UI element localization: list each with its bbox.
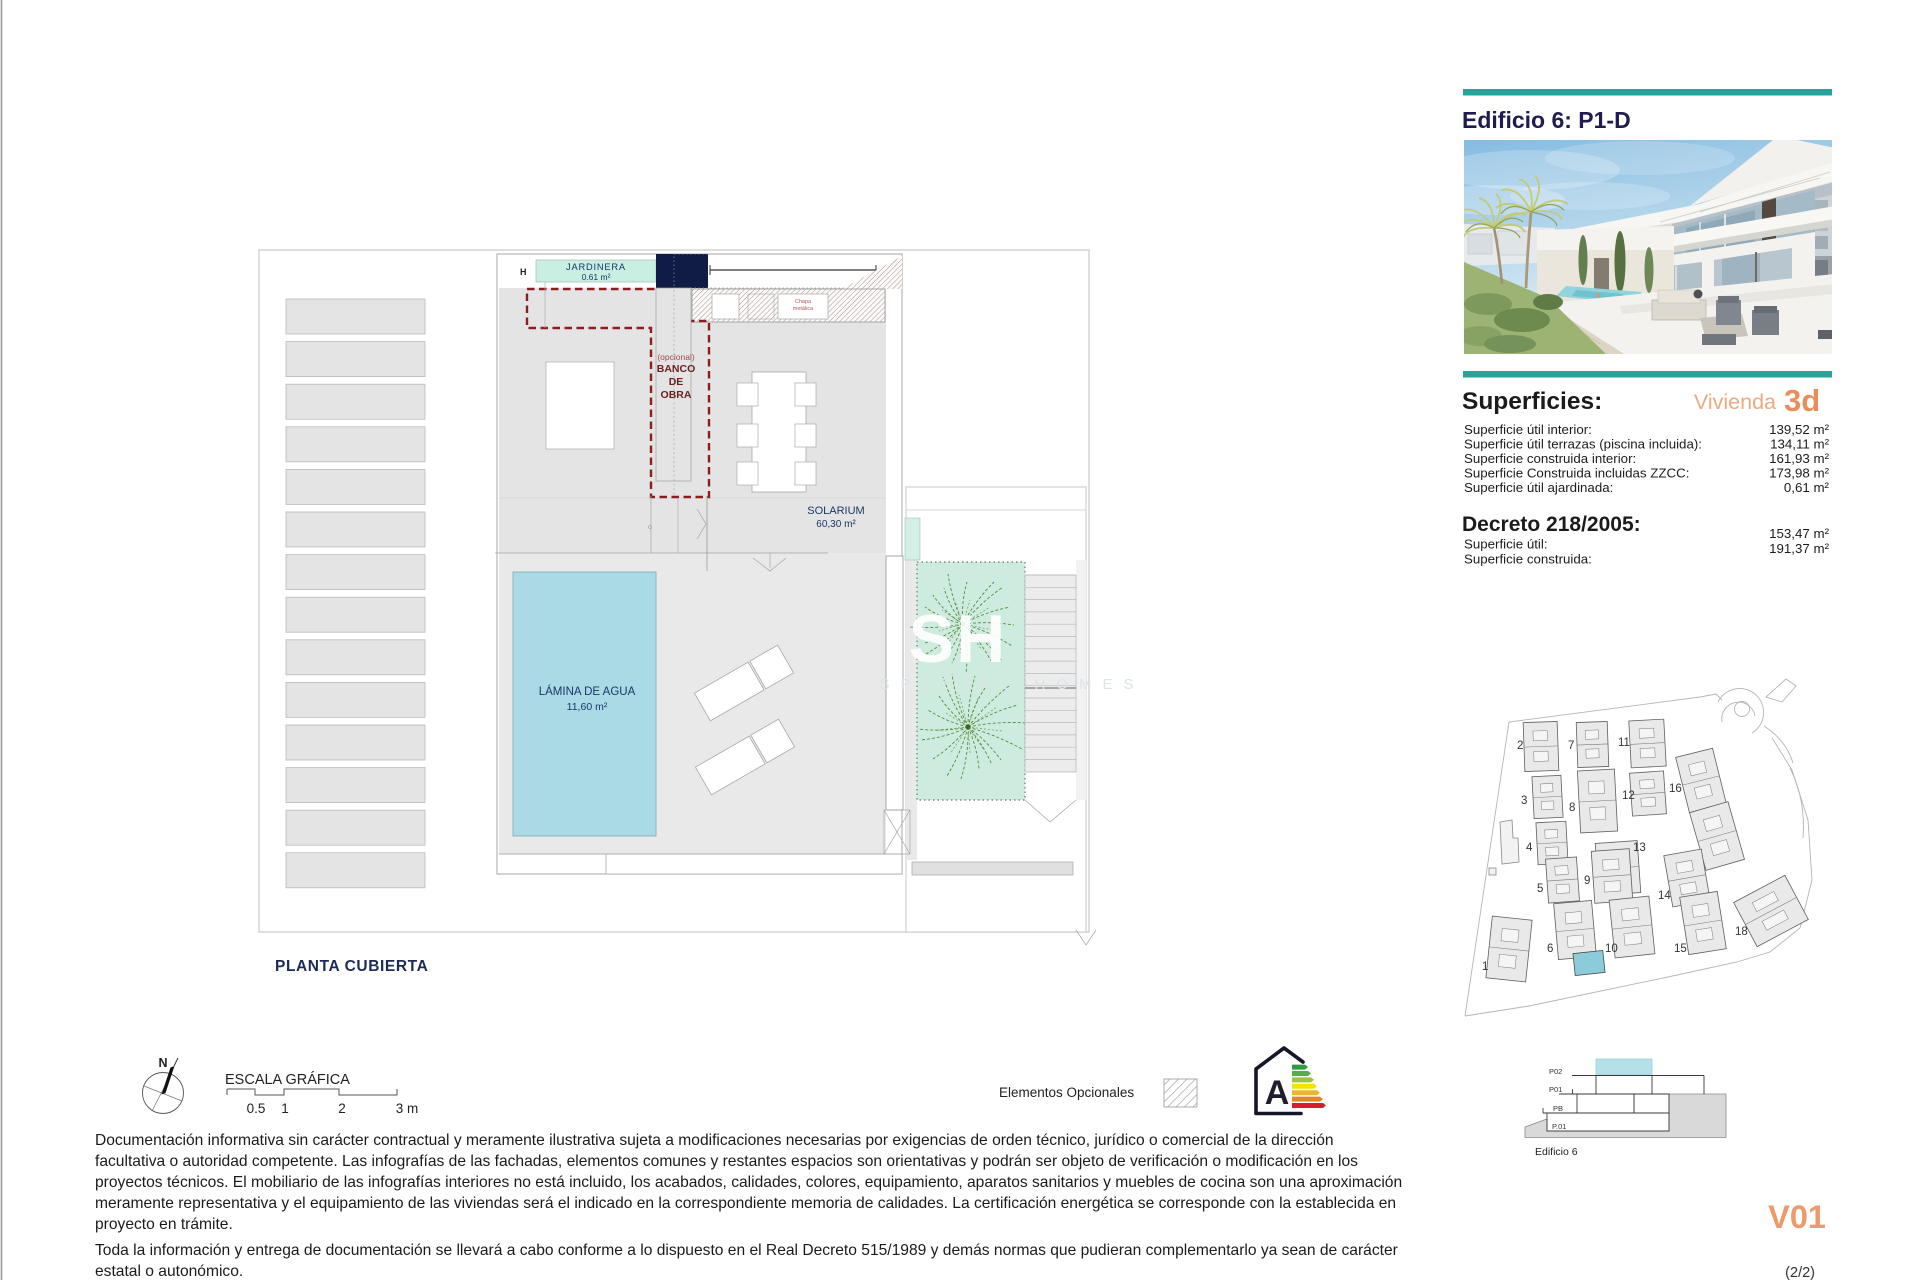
svg-text:16: 16 — [1669, 783, 1682, 795]
svg-text:PLANTA CUBIERTA: PLANTA CUBIERTA — [275, 958, 428, 975]
svg-text:2: 2 — [1517, 740, 1523, 752]
svg-text:0,61 m²: 0,61 m² — [1784, 480, 1830, 495]
svg-text:PB: PB — [1553, 1104, 1563, 1113]
svg-text:0.61 m²: 0.61 m² — [582, 272, 611, 282]
svg-text:11: 11 — [1618, 737, 1630, 749]
svg-text:Superficie construida:: Superficie construida: — [1464, 552, 1592, 567]
svg-text:P01: P01 — [1549, 1085, 1562, 1094]
svg-text:139,52 m²: 139,52 m² — [1769, 422, 1829, 437]
svg-text:4: 4 — [1526, 842, 1533, 854]
svg-text:173,98 m²: 173,98 m² — [1769, 466, 1829, 481]
svg-text:Decreto 218/2005:: Decreto 218/2005: — [1462, 513, 1641, 536]
svg-text:N: N — [158, 1056, 167, 1070]
svg-text:60,30 m²: 60,30 m² — [816, 519, 856, 530]
svg-text:3 m: 3 m — [396, 1101, 419, 1116]
svg-text:10: 10 — [1605, 943, 1618, 955]
svg-text:9: 9 — [1584, 875, 1590, 887]
svg-text:3: 3 — [1521, 795, 1527, 807]
svg-text:P02: P02 — [1549, 1067, 1562, 1076]
svg-text:Elementos Opcionales: Elementos Opcionales — [999, 1085, 1134, 1100]
svg-text:Superficie Construida incluida: Superficie Construida incluidas ZZCC: — [1464, 466, 1689, 481]
svg-text:V01: V01 — [1768, 1199, 1826, 1235]
svg-text:6: 6 — [1547, 943, 1553, 955]
svg-text:Superficie útil interior:: Superficie útil interior: — [1464, 422, 1592, 437]
svg-text:Superficies:: Superficies: — [1462, 388, 1602, 415]
svg-text:12: 12 — [1622, 790, 1635, 802]
svg-text:Superficie útil ajardinada:: Superficie útil ajardinada: — [1464, 480, 1613, 495]
svg-text:14: 14 — [1658, 890, 1671, 902]
svg-text:1: 1 — [281, 1101, 289, 1116]
svg-text:1: 1 — [1482, 961, 1488, 973]
svg-text:153,47 m²: 153,47 m² — [1769, 526, 1829, 541]
svg-text:DE: DE — [669, 376, 684, 388]
svg-text:metálica: metálica — [793, 306, 814, 312]
svg-text:2: 2 — [338, 1101, 346, 1116]
svg-text:13: 13 — [1633, 842, 1646, 854]
svg-text:Vivienda: Vivienda — [1694, 390, 1776, 414]
svg-text:(opcional): (opcional) — [657, 352, 694, 362]
svg-text:P.01: P.01 — [1552, 1122, 1566, 1131]
svg-text:18: 18 — [1735, 926, 1748, 938]
svg-text:Chapa: Chapa — [795, 299, 812, 305]
svg-text:SPECIAL HOMES: SPECIAL HOMES — [880, 676, 1145, 693]
svg-text:8: 8 — [1569, 802, 1575, 814]
svg-text:(2/2): (2/2) — [1785, 1265, 1815, 1280]
svg-text:H: H — [520, 267, 527, 277]
svg-text:5: 5 — [1537, 883, 1543, 895]
svg-text:191,37 m²: 191,37 m² — [1769, 541, 1829, 556]
svg-text:LÁMINA DE AGUA: LÁMINA DE AGUA — [539, 685, 636, 698]
svg-text:Edificio 6: P1-D: Edificio 6: P1-D — [1462, 107, 1631, 133]
svg-text:3d: 3d — [1784, 383, 1820, 418]
svg-text:15: 15 — [1674, 943, 1687, 955]
svg-text:ESCALA GRÁFICA: ESCALA GRÁFICA — [225, 1071, 350, 1088]
svg-text:JARDINERA: JARDINERA — [566, 262, 626, 272]
svg-text:Superficie construida interior: Superficie construida interior: — [1464, 451, 1636, 466]
svg-text:134,11 m²: 134,11 m² — [1770, 437, 1829, 452]
svg-text:SOLARIUM: SOLARIUM — [807, 505, 864, 517]
svg-text:0.5: 0.5 — [247, 1101, 266, 1116]
svg-text:Superficie útil:: Superficie útil: — [1464, 537, 1548, 552]
svg-text:SH: SH — [909, 601, 1007, 677]
svg-text:BANCO: BANCO — [657, 363, 696, 375]
svg-text:Edificio 6: Edificio 6 — [1535, 1146, 1578, 1158]
svg-text:11,60 m²: 11,60 m² — [567, 701, 608, 713]
svg-text:OBRA: OBRA — [661, 389, 692, 401]
svg-text:161,93 m²: 161,93 m² — [1769, 451, 1829, 466]
svg-text:A: A — [1265, 1074, 1290, 1112]
svg-text:7: 7 — [1568, 740, 1574, 752]
svg-text:Superficie útil terrazas (pisc: Superficie útil terrazas (piscina inclui… — [1464, 437, 1702, 452]
